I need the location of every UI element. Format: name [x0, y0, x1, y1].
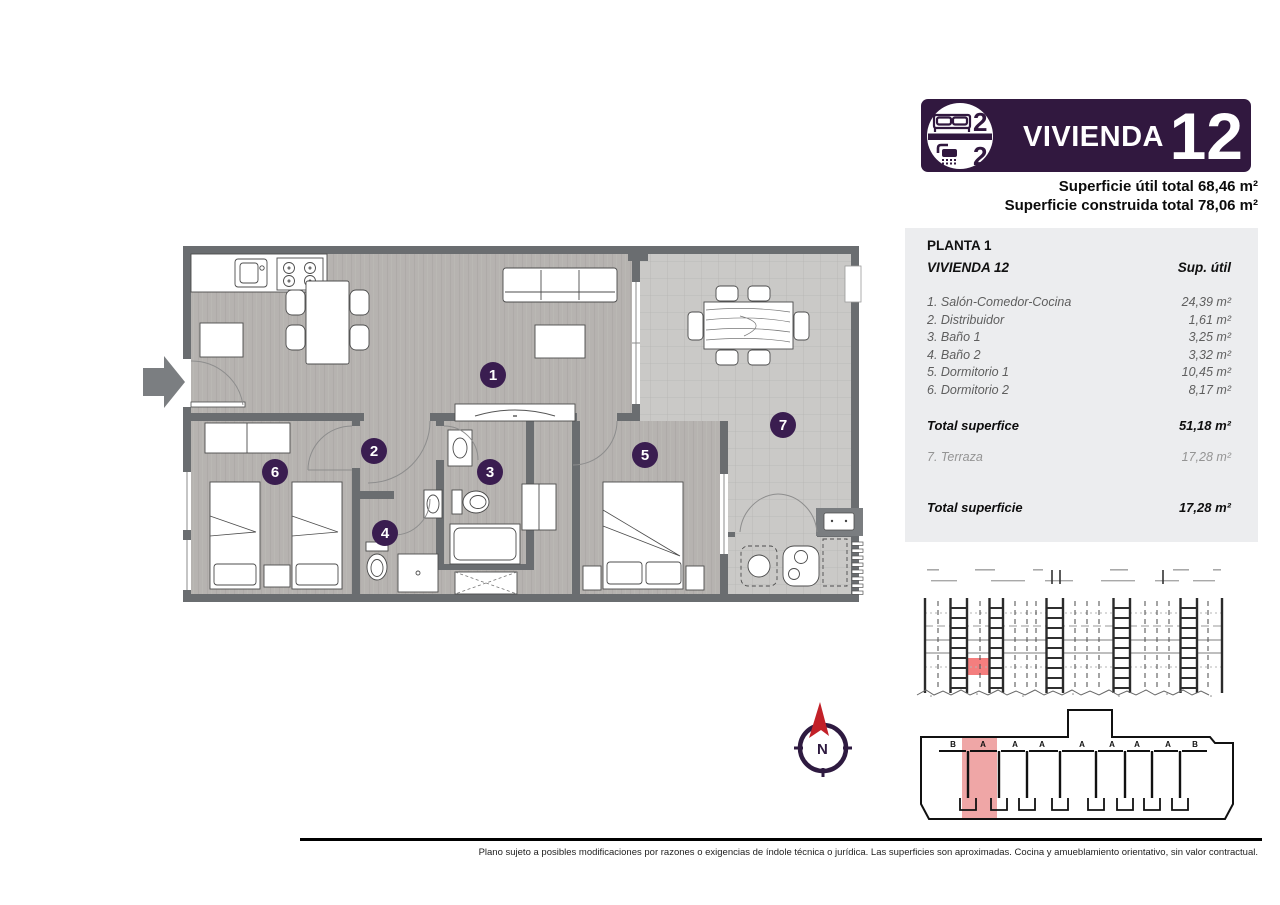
unit-letter: B	[1190, 740, 1200, 749]
unit-letter: A	[1077, 740, 1087, 749]
nightstand	[583, 566, 601, 590]
shower-icon	[938, 145, 957, 165]
table-row: 4. Baño 23,32 m²	[927, 347, 1231, 365]
terrace-row: 7. Terraza17,28 m²	[927, 450, 1231, 464]
bedroom-count: 2	[973, 107, 987, 137]
unit-letter: A	[1107, 740, 1117, 749]
unit-number: 12	[1170, 101, 1243, 171]
dimension-marks	[927, 569, 1221, 581]
edge-columns	[925, 598, 1222, 693]
table-row: 3. Baño 13,25 m²	[927, 329, 1231, 347]
stair-columns	[951, 598, 1198, 693]
room-marker-2: 2	[361, 438, 387, 464]
surface-built-total: Superficie construida total 78,06 m²	[1005, 197, 1258, 214]
nightstand	[686, 566, 704, 590]
unit-letter: A	[1132, 740, 1142, 749]
surface-util-total: Superficie útil total 68,46 m²	[1059, 178, 1258, 195]
bed-shower-icon: 2 2	[927, 103, 993, 169]
unit-letter: B	[948, 740, 958, 749]
table-row: 2. Distribuidor1,61 m²	[927, 312, 1231, 330]
nightstand	[264, 565, 290, 587]
table-row: 6. Dormitorio 28,17 m²	[927, 382, 1231, 400]
room-marker-3: 3	[477, 459, 503, 485]
room-marker-7: 7	[770, 412, 796, 438]
north-arrow-icon	[809, 702, 829, 738]
unit-letter: A	[1037, 740, 1047, 749]
total-row: Total superficie17,28 m²	[927, 500, 1231, 515]
room-marker-4: 4	[372, 520, 398, 546]
toilet	[452, 490, 462, 514]
building-elevation	[905, 563, 1240, 703]
floor-plan	[140, 244, 867, 604]
unit-letter: A	[1010, 740, 1020, 749]
ac-unit	[816, 508, 863, 536]
room-marker-1: 1	[480, 362, 506, 388]
compass-north-label: N	[817, 741, 828, 758]
bathroom-count: 2	[973, 141, 987, 169]
unit-letter: A	[1163, 740, 1173, 749]
unit-letter: A	[978, 740, 988, 749]
shower-tray	[455, 572, 517, 594]
tv-unit	[455, 404, 575, 421]
subtotal-row: Total superfice51,18 m²	[927, 418, 1231, 433]
entry-arrow-icon	[143, 356, 185, 408]
disclaimer-text: Plano sujeto a posibles modificaciones p…	[300, 847, 1258, 858]
room-marker-6: 6	[262, 459, 288, 485]
table-row: 1. Salón-Comedor-Cocina24,39 m²	[927, 294, 1231, 312]
unit-dividers	[968, 751, 1180, 798]
sofa	[503, 268, 617, 302]
unit-title: VIVIENDA	[1023, 121, 1164, 154]
unit-badge: 2 2 VIVIENDA 12	[921, 99, 1251, 172]
footer-divider	[300, 838, 1262, 841]
dashed-columns	[938, 601, 1208, 691]
floor-label: PLANTA 1	[927, 238, 1231, 253]
fridge	[200, 323, 243, 357]
building-footprint	[905, 706, 1240, 834]
ground-line	[917, 690, 1212, 697]
hall-closet	[522, 484, 556, 530]
badge-room-count-circle: 2 2	[927, 103, 993, 169]
table-column-label: Sup. útil	[1178, 260, 1231, 275]
coffee-table	[535, 325, 585, 358]
room-marker-5: 5	[632, 442, 658, 468]
table-row: 5. Dormitorio 110,45 m²	[927, 364, 1231, 382]
area-table: PLANTA 1 VIVIENDA 12 Sup. útil 1. Salón-…	[905, 228, 1258, 542]
wardrobe	[205, 423, 290, 453]
table-unit-label: VIVIENDA 12	[927, 260, 1009, 275]
north-compass	[789, 698, 859, 780]
